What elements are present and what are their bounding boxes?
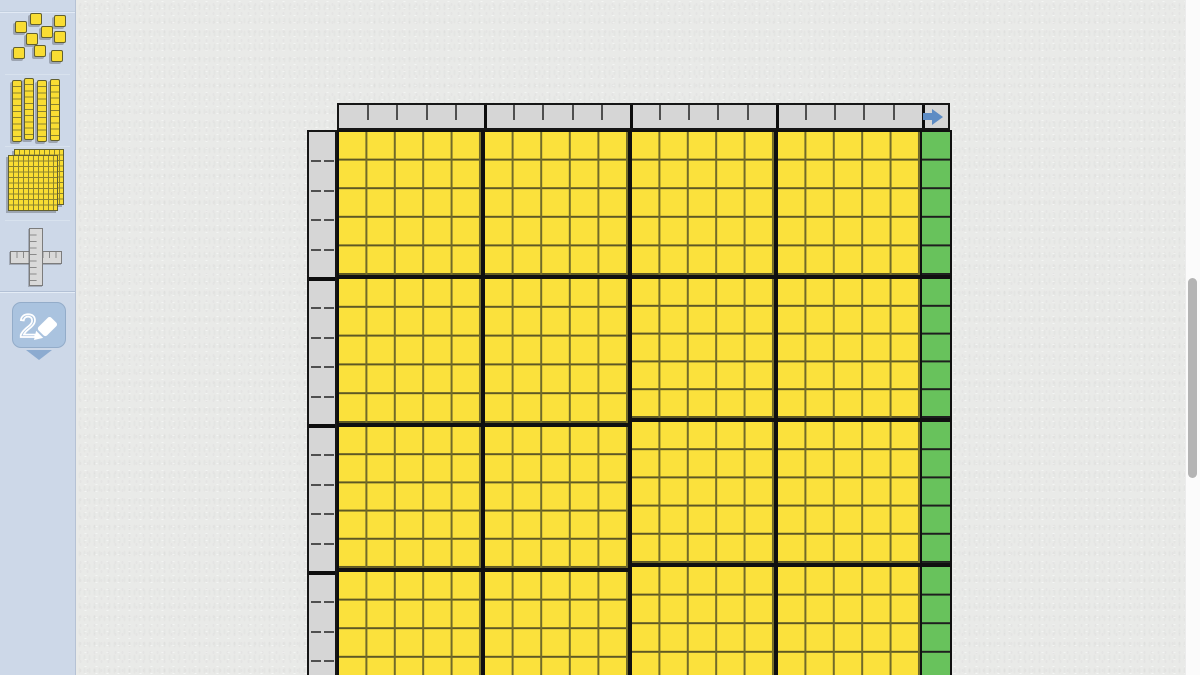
- yellow-flat-piece[interactable]: [483, 130, 630, 277]
- ruler-dash-mark: [311, 660, 321, 662]
- yellow-flat-piece[interactable]: [776, 130, 922, 277]
- vertical-scrollbar-thumb[interactable]: [1188, 278, 1197, 478]
- marker-pen-icon: 2: [13, 303, 67, 349]
- pencil-count-label: 2: [19, 308, 37, 344]
- ruler-tick: [513, 105, 515, 120]
- ruler-dash-mark: [324, 307, 334, 309]
- ruler-dash-mark: [324, 219, 334, 221]
- ruler-tick: [776, 105, 779, 128]
- left-edge-ruler[interactable]: [307, 130, 337, 675]
- yellow-flat-piece[interactable]: [776, 420, 922, 565]
- ruler-tick: [893, 105, 895, 120]
- extend-right-arrow-icon[interactable]: [923, 109, 943, 125]
- board: [0, 0, 1200, 675]
- yellow-flat-piece[interactable]: [483, 277, 630, 425]
- ruler-dash-mark: [324, 543, 334, 545]
- pencil-dropdown-chevron-icon[interactable]: [26, 350, 52, 360]
- ruler-tick: [630, 105, 633, 128]
- tray-divider: [5, 146, 70, 147]
- ruler-tick: [426, 105, 428, 120]
- top-edge-ruler[interactable]: [337, 103, 950, 130]
- yellow-flat-piece[interactable]: [483, 570, 630, 675]
- units-piece-tool[interactable]: [5, 12, 71, 72]
- ruler-dash-mark: [311, 631, 321, 633]
- yellow-flat-piece[interactable]: [776, 277, 922, 420]
- ruler-dash-mark: [311, 249, 321, 251]
- yellow-flat-piece[interactable]: [337, 570, 483, 675]
- ruler-tick: [805, 105, 807, 120]
- ruler-tick: [572, 105, 574, 120]
- ruler-dash-mark: [311, 396, 321, 398]
- ruler-tick: [717, 105, 719, 120]
- ruler-tick: [688, 105, 690, 120]
- ruler-dash-mark: [311, 307, 321, 309]
- ruler-tick: [367, 105, 369, 120]
- ruler-dash-mark: [311, 601, 321, 603]
- ruler-dash-mark: [311, 454, 321, 456]
- yellow-flat-piece[interactable]: [337, 130, 483, 277]
- ruler-heavy-mark: [309, 424, 335, 428]
- edge-pieces-tool[interactable]: [5, 222, 71, 289]
- green-strip-piece[interactable]: [920, 565, 952, 675]
- ruler-tick: [601, 105, 603, 120]
- yellow-flat-piece[interactable]: [630, 130, 776, 277]
- flats-piece-tool[interactable]: [5, 148, 71, 218]
- green-strip-piece[interactable]: [920, 130, 952, 277]
- ruler-dash-mark: [311, 543, 321, 545]
- ruler-dash-mark: [324, 396, 334, 398]
- ruler-dash-mark: [311, 484, 321, 486]
- green-strip-piece[interactable]: [920, 420, 952, 565]
- ruler-tick: [747, 105, 749, 120]
- ruler-tick: [659, 105, 661, 120]
- yellow-flat-piece[interactable]: [776, 565, 922, 675]
- pencil-annotate-button[interactable]: 2: [12, 302, 66, 348]
- rods-piece-tool[interactable]: [5, 76, 71, 144]
- ruler-dash-mark: [324, 484, 334, 486]
- arrow-head: [932, 109, 943, 125]
- yellow-flat-piece[interactable]: [337, 425, 483, 570]
- ruler-heavy-mark: [309, 571, 335, 575]
- pieces-tray-sidebar: 2: [0, 0, 76, 675]
- ruler-dash-mark: [324, 337, 334, 339]
- ruler-dash-mark: [324, 249, 334, 251]
- ruler-dash-mark: [311, 219, 321, 221]
- yellow-flat-piece[interactable]: [337, 277, 483, 425]
- top-ruler-ticks: [339, 105, 948, 128]
- ruler-dash-mark: [311, 190, 321, 192]
- green-strip-piece[interactable]: [920, 277, 952, 420]
- ruler-tick: [542, 105, 544, 120]
- ruler-dash-mark: [324, 601, 334, 603]
- ruler-dash-mark: [311, 366, 321, 368]
- yellow-flat-piece[interactable]: [630, 277, 776, 420]
- app-canvas: 2: [0, 0, 1200, 675]
- tray-divider: [5, 220, 70, 221]
- ruler-tick: [863, 105, 865, 120]
- ruler-dash-mark: [324, 190, 334, 192]
- ruler-dash-mark: [324, 160, 334, 162]
- ruler-heavy-mark: [309, 277, 335, 281]
- ruler-dash-mark: [324, 454, 334, 456]
- ruler-dash-mark: [324, 631, 334, 633]
- yellow-flat-piece[interactable]: [630, 565, 776, 675]
- yellow-flat-piece[interactable]: [483, 425, 630, 570]
- ruler-tick: [396, 105, 398, 120]
- ruler-dash-mark: [311, 513, 321, 515]
- ruler-dash-mark: [324, 660, 334, 662]
- ruler-tick: [455, 105, 457, 120]
- ruler-tick: [834, 105, 836, 120]
- ruler-dash-mark: [324, 513, 334, 515]
- tray-divider: [5, 74, 70, 75]
- ruler-dash-mark: [311, 160, 321, 162]
- vertical-scrollbar-track[interactable]: [1185, 0, 1200, 675]
- yellow-flat-piece[interactable]: [630, 420, 776, 565]
- ruler-dash-mark: [311, 337, 321, 339]
- arrow-tail: [923, 113, 932, 120]
- tray-bottom-divider: [0, 291, 75, 292]
- ruler-dash-mark: [324, 366, 334, 368]
- ruler-tick: [484, 105, 487, 128]
- left-ruler-ticks: [309, 132, 335, 675]
